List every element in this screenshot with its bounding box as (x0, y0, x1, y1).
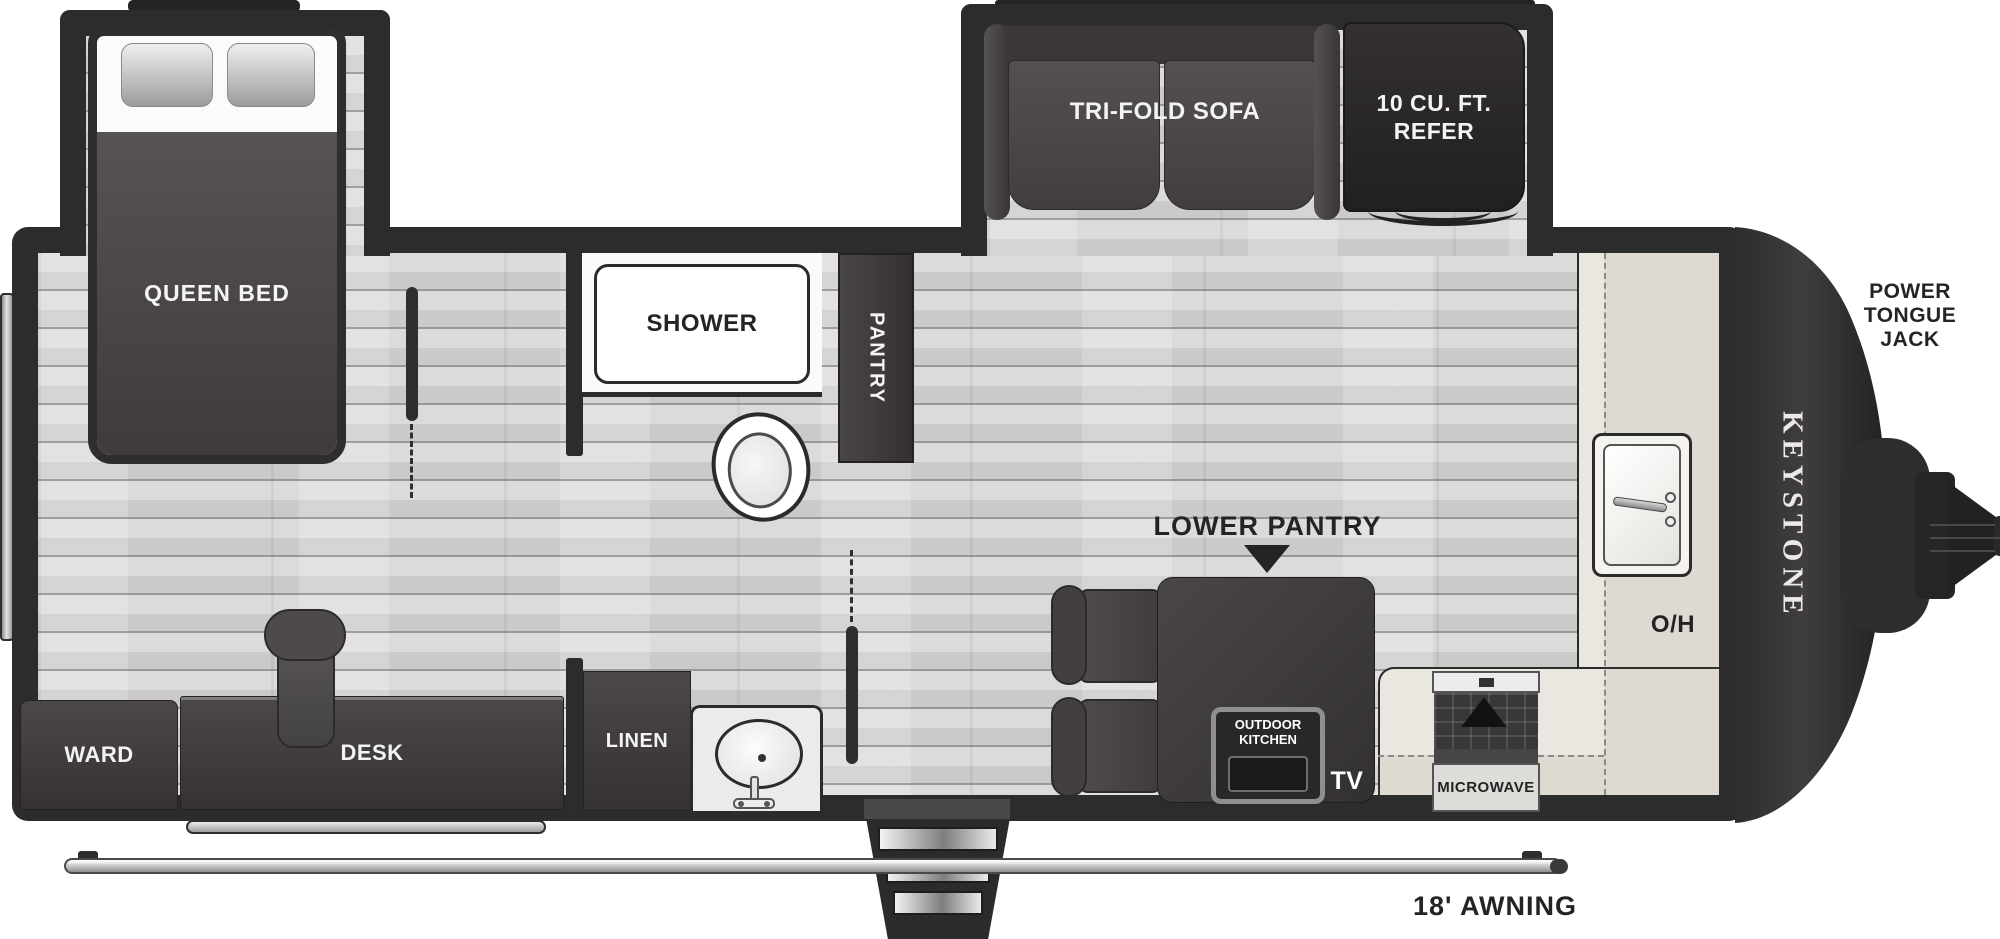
entry-door-threshold (864, 799, 1010, 819)
lower-pantry-label: LOWER PANTRY (1140, 510, 1395, 542)
refrigerator-label: 10 CU. FT. REFER (1369, 89, 1499, 145)
awning-rail (64, 858, 1562, 874)
desk-chair-back (264, 609, 346, 661)
pillow (121, 43, 213, 107)
oven-lip (1434, 749, 1538, 763)
microwave-label: MICROWAVE (1432, 763, 1540, 812)
faucet-knob-icon (738, 801, 744, 807)
keystone-logo: KEYSTONE (1772, 375, 1812, 655)
desk: DESK (180, 696, 564, 810)
underbody-bar (186, 820, 546, 834)
bathroom-sink (715, 719, 803, 789)
power-tongue-jack-label: POWER TONGUE JACK (1845, 278, 1975, 354)
stove: MICROWAVE (1432, 671, 1540, 812)
door-track-dashes (410, 424, 413, 498)
dinette-chair-back (1051, 585, 1087, 685)
desk-chair-seat (277, 646, 335, 748)
outdoor-kitchen-label: OUTDOOR KITCHEN (1216, 717, 1320, 747)
rv-floorplan: O/H MICROWAVE QUEEN BED SHOWER PANTRY (0, 0, 2000, 939)
pantry-label: PANTRY (840, 255, 912, 461)
door-track-dashes (850, 550, 853, 622)
outdoor-kitchen-panel (1228, 756, 1308, 792)
dinette-chair-back (1051, 697, 1087, 797)
awning-label: 18' AWNING (1380, 890, 1610, 922)
bath-wall (566, 658, 583, 810)
queen-bed: QUEEN BED (88, 27, 346, 464)
faucet-base-icon (733, 798, 775, 809)
dinette-chair (1078, 589, 1162, 683)
step-tread (893, 891, 983, 915)
tv-label: TV (1322, 766, 1372, 796)
sofa-armrest (1314, 24, 1340, 220)
step-tread (878, 827, 998, 851)
refer-vent-icon (1395, 200, 1491, 222)
pocket-door (406, 287, 418, 421)
sofa-armrest (984, 24, 1010, 220)
faucet-knob-icon (1665, 516, 1676, 527)
pillow (227, 43, 315, 107)
sofa-label: TRI-FOLD SOFA (1020, 98, 1310, 126)
drain-icon (758, 754, 766, 762)
sofa-cushion (1164, 60, 1316, 210)
pantry-cabinet: PANTRY (838, 253, 914, 463)
arrow-down-icon (1244, 545, 1290, 573)
shower-pan: SHOWER (594, 264, 810, 384)
queen-bed-label: QUEEN BED (144, 280, 290, 307)
toilet-bowl (725, 430, 794, 510)
sofa-cushion (1008, 60, 1160, 210)
bath-wall (566, 250, 583, 456)
refrigerator: 10 CU. FT. REFER (1343, 22, 1525, 212)
faucet-knob-icon (1665, 492, 1676, 503)
bed-blanket: QUEEN BED (97, 132, 337, 455)
ward-cabinet: WARD (20, 700, 178, 810)
dinette-chair (1078, 699, 1162, 793)
linen-cabinet: LINEN (583, 671, 691, 811)
kitchen-sink (1592, 433, 1692, 577)
outdoor-kitchen-door: OUTDOOR KITCHEN (1211, 707, 1325, 804)
burner-grate-icon (1432, 671, 1540, 693)
pocket-door (846, 626, 858, 764)
sofa-back (997, 26, 1329, 64)
faucet-knob-icon (764, 801, 770, 807)
bathroom-vanity (690, 705, 823, 811)
awning-rail-cap (1550, 859, 1568, 874)
entry-steps (862, 821, 1014, 939)
